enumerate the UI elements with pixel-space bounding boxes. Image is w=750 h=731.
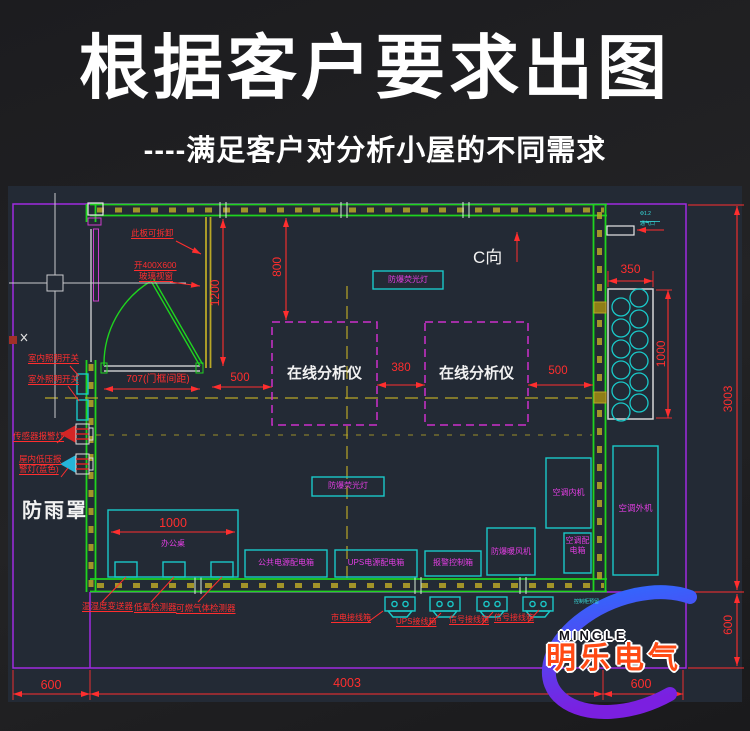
dim-707-door: 707(门框间距) xyxy=(114,374,202,386)
dim-500-left: 500 xyxy=(220,372,260,385)
junction-mains-label: 市电接线箱 xyxy=(331,613,371,622)
dim-350: 350 xyxy=(608,263,653,277)
ac-indoor-label: 空调内机 xyxy=(546,488,591,497)
rain-cover-label: 防雨罩 xyxy=(22,500,88,523)
vent-name-label: 通气口 xyxy=(640,222,655,228)
vent-size-label: Φ1.2 xyxy=(640,212,651,218)
promo-page: 根据客户要求出图 ----满足客户对分析小屋的不同需求 xyxy=(0,0,750,731)
analyzer-2-label: 在线分析仪 xyxy=(425,365,528,382)
dim-500-right: 500 xyxy=(538,365,578,378)
dim-600-bottom-left: 600 xyxy=(36,678,66,692)
junction-signal-1-label: 信号接线箱 xyxy=(449,615,489,624)
sensor-alarm-label: 传感器报警灯 xyxy=(13,432,64,442)
dim-4003: 4003 xyxy=(324,676,370,690)
dim-600-bottom-right: 600 xyxy=(623,677,659,691)
dim-800: 800 xyxy=(271,247,285,287)
outdoor-switch-label: 室外照明开关 xyxy=(28,375,79,385)
dim-380: 380 xyxy=(381,362,421,375)
ac-outdoor-label: 空调外机 xyxy=(613,504,658,514)
dim-1000-cylinders: 1000 xyxy=(655,332,669,376)
alarm-control-box-label: 报警控制箱 xyxy=(425,558,481,567)
dim-3003: 3003 xyxy=(722,373,736,425)
fluorescent-2-label: 防爆荧光灯 xyxy=(312,481,384,490)
detector-low-oxygen-label: 低氧检测器 xyxy=(134,603,177,613)
dim-600-right: 600 xyxy=(722,605,736,645)
junction-signal-2-label: 信号接线箱 xyxy=(494,613,534,622)
detector-temp-humidity-label: 温湿度变送器 xyxy=(82,602,133,612)
fluorescent-1-label: 防爆荧光灯 xyxy=(373,275,443,284)
direction-label: C向 xyxy=(473,248,502,268)
junction-ups-label: UPS接线箱 xyxy=(396,617,436,626)
analyzer-1-label: 在线分析仪 xyxy=(272,365,377,382)
low-pressure-alarm-label: 屋内低压报警灯(蓝色) xyxy=(19,455,67,475)
note-panel-removable: 此板可拆卸 xyxy=(131,229,174,239)
brand-name-cn: 明乐电气 xyxy=(546,642,682,677)
dim-1000-desk: 1000 xyxy=(140,516,206,530)
detector-gas-label: 可燃气体检测器 xyxy=(176,604,236,614)
reserved-note: 控制柜预留 xyxy=(574,600,599,606)
note-window-glass: 玻璃视窗 xyxy=(139,272,173,282)
heater-label: 防爆暖风机 xyxy=(487,547,535,556)
ac-power-box-label: 空调配电箱 xyxy=(565,536,590,557)
indoor-switch-label: 室内照明开关 xyxy=(28,354,79,364)
note-window-open: 开400X600 xyxy=(134,261,177,271)
desk-label: 办公桌 xyxy=(140,539,206,548)
public-power-box-label: 公共电源配电箱 xyxy=(245,558,327,567)
dim-1200: 1200 xyxy=(209,273,223,313)
ups-power-box-label: UPS电源配电箱 xyxy=(335,558,417,567)
